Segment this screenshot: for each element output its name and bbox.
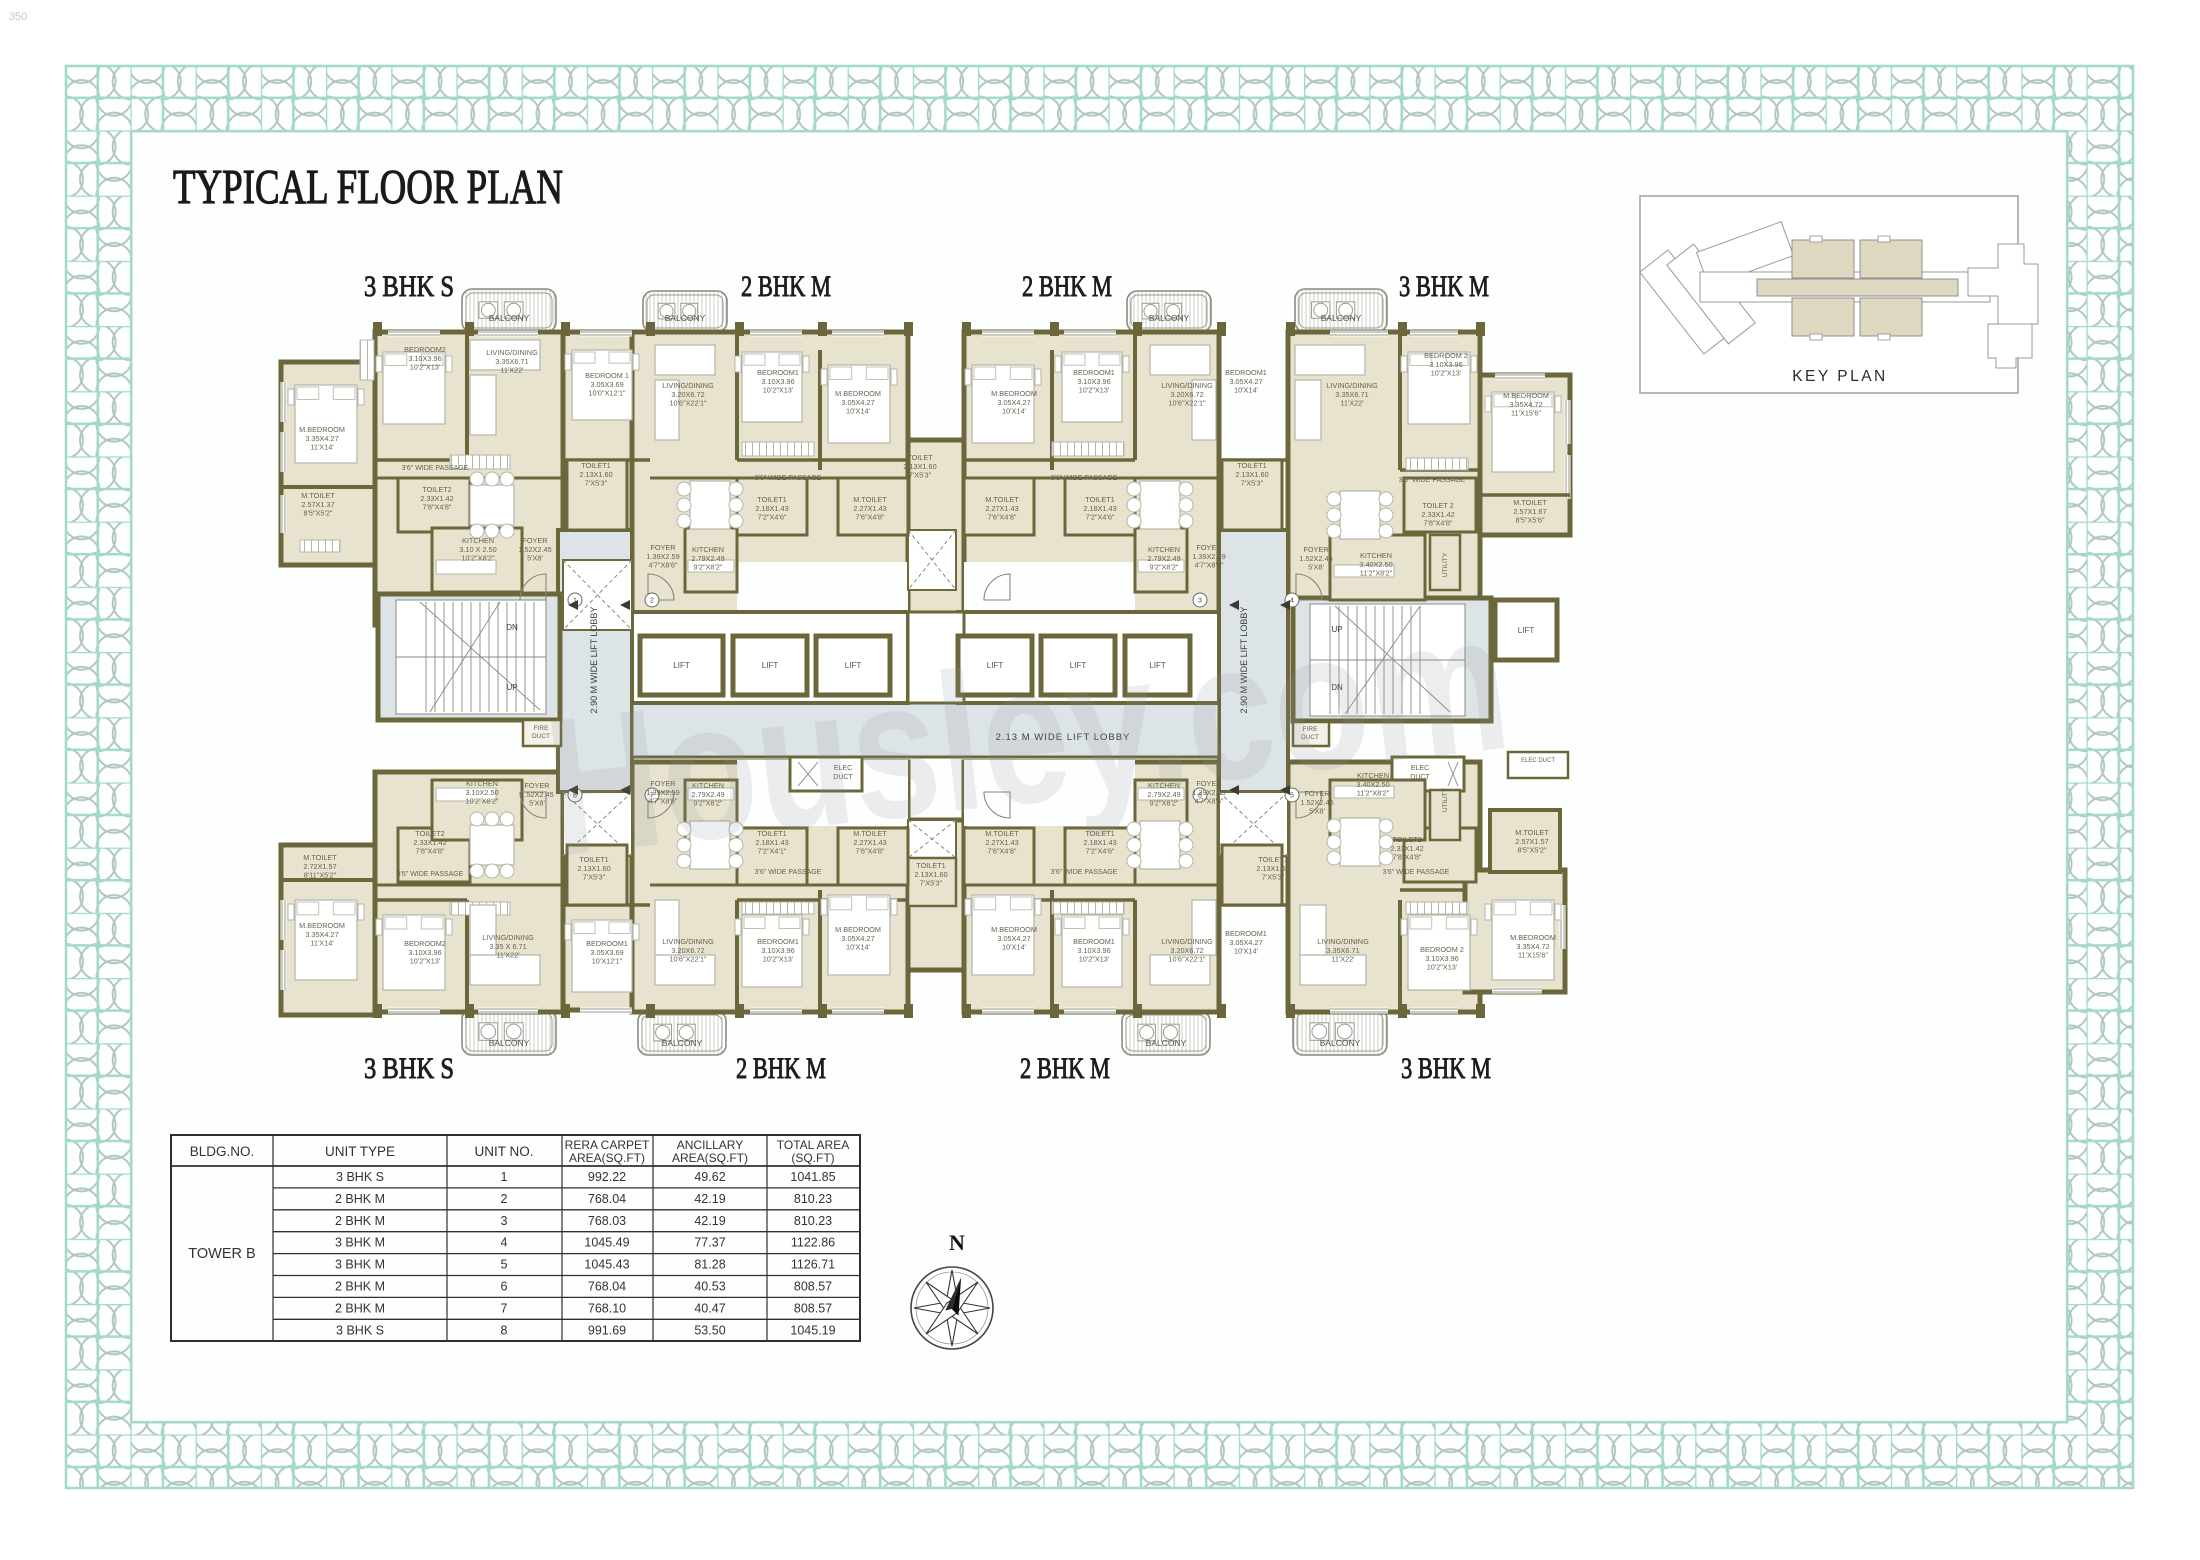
svg-text:KITCHEN: KITCHEN [462,536,494,545]
svg-text:M.BEDROOM: M.BEDROOM [835,389,881,398]
svg-text:3.35X4.72: 3.35X4.72 [1509,400,1542,409]
svg-text:3.35X6.71: 3.35X6.71 [495,357,528,366]
svg-text:BEDROOM1: BEDROOM1 [1225,929,1267,938]
svg-text:10'X14': 10'X14' [1002,407,1026,416]
svg-text:10'2"X13': 10'2"X13' [1427,963,1458,972]
svg-text:1.52X2.45: 1.52X2.45 [518,545,551,554]
svg-text:M.BEDROOM: M.BEDROOM [299,921,345,930]
svg-text:11'X22': 11'X22' [1340,399,1364,408]
svg-text:BALCONY: BALCONY [489,1038,530,1048]
svg-text:BEDROOM 2: BEDROOM 2 [1424,351,1468,360]
svg-text:10'X12'1": 10'X12'1" [592,957,623,966]
svg-text:BEDROOM1: BEDROOM1 [1073,937,1115,946]
svg-text:7'8"X4'8": 7'8"X4'8" [422,503,451,512]
svg-text:10'2"X13': 10'2"X13' [763,955,794,964]
svg-text:11'X14': 11'X14' [310,939,334,948]
svg-text:KITCHEN: KITCHEN [1148,545,1180,554]
svg-text:LIVING/DINING: LIVING/DINING [486,348,538,357]
svg-text:5'X8': 5'X8' [1308,563,1324,572]
svg-text:10'6"X22'1": 10'6"X22'1" [1168,399,1206,408]
svg-text:991.69: 991.69 [588,1323,626,1337]
svg-text:LIVING/DINING: LIVING/DINING [1161,937,1213,946]
svg-text:7'X5'3": 7'X5'3" [1241,479,1264,488]
svg-text:TOWER B: TOWER B [188,1246,255,1262]
svg-text:DN: DN [506,623,518,632]
svg-text:10'0"X12'1": 10'0"X12'1" [588,389,626,398]
svg-text:1045.43: 1045.43 [584,1258,629,1272]
svg-text:BALCONY: BALCONY [489,313,530,323]
svg-text:4: 4 [501,1236,508,1250]
svg-text:2.57X1.57: 2.57X1.57 [1515,837,1548,846]
svg-text:BALCONY: BALCONY [1149,313,1190,323]
svg-text:BEDROOM1: BEDROOM1 [1073,368,1115,377]
svg-text:2: 2 [501,1192,508,1206]
svg-text:UNIT NO.: UNIT NO. [474,1144,533,1159]
svg-text:3.35X6.71: 3.35X6.71 [1326,946,1359,955]
svg-text:BEDROOM 2: BEDROOM 2 [1420,945,1464,954]
svg-text:10'2"X8'2": 10'2"X8'2" [465,797,499,806]
svg-text:3'6" WIDE PASSAGE: 3'6" WIDE PASSAGE [1399,477,1466,484]
svg-text:2 BHK M: 2 BHK M [1022,270,1112,303]
svg-text:BEDROOM1: BEDROOM1 [1225,368,1267,377]
svg-text:FOYER: FOYER [1196,543,1221,552]
svg-text:LIVING/DINING: LIVING/DINING [482,933,534,942]
svg-text:2.33X1.42: 2.33X1.42 [413,838,446,847]
svg-text:3 BHK S: 3 BHK S [364,270,454,303]
svg-text:ELEC DUCT: ELEC DUCT [1521,758,1555,764]
svg-text:4'7"X8'6": 4'7"X8'6" [1194,561,1223,570]
svg-text:10'2"X13': 10'2"X13' [763,386,794,395]
svg-text:11'X15'6": 11'X15'6" [1511,409,1541,418]
svg-text:2.33X1.42: 2.33X1.42 [1421,510,1454,519]
svg-text:2 BHK M: 2 BHK M [335,1192,385,1206]
svg-text:3 BHK S: 3 BHK S [364,1052,454,1085]
svg-text:10'2"X13': 10'2"X13' [1079,955,1110,964]
svg-text:3 BHK M: 3 BHK M [1399,270,1489,303]
svg-text:3.05X4.27: 3.05X4.27 [1229,377,1262,386]
svg-text:8'5"X5'2": 8'5"X5'2" [1517,846,1546,855]
svg-text:3.35X4.27: 3.35X4.27 [305,434,338,443]
svg-text:RERA CARPET: RERA CARPET [565,1138,650,1152]
svg-text:11'X22': 11'X22' [496,951,520,960]
svg-text:11'X15'6": 11'X15'6" [1518,951,1548,960]
svg-text:M.BEDROOM: M.BEDROOM [835,925,881,934]
svg-text:3'6" WIDE PASSAGE: 3'6" WIDE PASSAGE [397,871,464,878]
svg-text:11'X14': 11'X14' [310,443,334,452]
svg-text:42.19: 42.19 [694,1192,725,1206]
svg-text:3.10X2.50: 3.10X2.50 [465,788,498,797]
svg-text:10'X14': 10'X14' [1234,386,1258,395]
svg-text:AREA(SQ.FT): AREA(SQ.FT) [569,1151,645,1165]
svg-text:TOILET 2: TOILET 2 [1422,501,1453,510]
svg-text:7'6"X4'8": 7'6"X4'8" [855,513,884,522]
svg-text:N: N [949,1230,965,1255]
svg-text:2.18X1.43: 2.18X1.43 [1083,838,1116,847]
svg-text:2 BHK M: 2 BHK M [741,270,831,303]
svg-text:7'X5'3": 7'X5'3" [585,479,608,488]
svg-text:BALCONY: BALCONY [665,313,706,323]
svg-text:M.TOILET: M.TOILET [985,495,1019,504]
svg-text:49.62: 49.62 [694,1170,725,1184]
svg-text:2.79X2.49: 2.79X2.49 [691,554,724,563]
svg-text:11'2"X8'2": 11'2"X8'2" [1360,569,1393,578]
svg-text:7: 7 [501,1301,508,1315]
svg-text:2 BHK M: 2 BHK M [736,1052,826,1085]
svg-text:3.35X6.71: 3.35X6.71 [1335,390,1368,399]
svg-text:2.57X1.37: 2.57X1.37 [301,500,334,509]
svg-text:1122.86: 1122.86 [791,1236,835,1250]
svg-text:3.20X6.72: 3.20X6.72 [671,390,704,399]
svg-text:FOYER: FOYER [522,536,547,545]
svg-text:768.04: 768.04 [588,1192,626,1206]
svg-text:3'6" WIDE PASSAGE: 3'6" WIDE PASSAGE [1051,475,1118,482]
svg-text:LIVING/DINING: LIVING/DINING [1326,381,1378,390]
svg-text:992.22: 992.22 [588,1170,626,1184]
svg-text:768.04: 768.04 [588,1280,626,1294]
svg-text:3.10X3.96: 3.10X3.96 [1077,377,1110,386]
svg-text:M.TOILET: M.TOILET [301,491,335,500]
svg-text:KITCHEN: KITCHEN [466,779,498,788]
svg-text:3.05X3.69: 3.05X3.69 [590,948,623,957]
svg-text:3 BHK M: 3 BHK M [335,1236,385,1250]
svg-text:M.TOILET: M.TOILET [1515,828,1549,837]
svg-text:42.19: 42.19 [694,1214,725,1228]
svg-text:8: 8 [501,1323,508,1337]
svg-text:3.05X4.27: 3.05X4.27 [841,934,874,943]
svg-text:FOYER: FOYER [1303,545,1328,554]
svg-text:1045.49: 1045.49 [584,1236,629,1250]
svg-text:5'X8': 5'X8' [527,554,543,563]
svg-text:7'8"X4'8": 7'8"X4'8" [1423,519,1452,528]
svg-text:BALCONY: BALCONY [1320,1038,1361,1048]
svg-text:810.23: 810.23 [794,1214,832,1228]
svg-text:2.13X1.60: 2.13X1.60 [579,470,612,479]
svg-text:FOYER: FOYER [524,781,549,790]
svg-text:40.53: 40.53 [694,1280,725,1294]
svg-text:3 BHK S: 3 BHK S [336,1170,384,1184]
svg-text:TOILET: TOILET [907,453,933,462]
svg-text:10'2"X13': 10'2"X13' [1431,369,1462,378]
svg-text:9'2"X8'2": 9'2"X8'2" [693,563,722,572]
svg-text:BLDG.NO.: BLDG.NO. [190,1144,255,1159]
svg-text:3.10X3.96: 3.10X3.96 [1425,954,1458,963]
svg-text:TOILET1: TOILET1 [581,461,610,470]
svg-text:8'11"X5'2": 8'11"X5'2" [304,871,337,880]
svg-text:1045.19: 1045.19 [790,1323,835,1337]
svg-text:10'2"X8'2": 10'2"X8'2" [461,554,495,563]
svg-text:3.05X4.27: 3.05X4.27 [997,398,1030,407]
svg-text:3.05X4.27: 3.05X4.27 [841,398,874,407]
svg-text:3.05X3.69: 3.05X3.69 [590,380,623,389]
svg-text:10'2"X13': 10'2"X13' [410,363,441,372]
svg-text:10'2"X13': 10'2"X13' [410,957,441,966]
svg-text:7'2"X4'6": 7'2"X4'6" [1085,847,1114,856]
svg-text:2 BHK M: 2 BHK M [1020,1052,1110,1085]
svg-text:TYPICAL FLOOR PLAN: TYPICAL FLOOR PLAN [173,159,563,214]
svg-text:7'2"X4'6": 7'2"X4'6" [1085,513,1114,522]
svg-text:BEDROOM 1: BEDROOM 1 [585,371,629,380]
svg-text:M.TOILET: M.TOILET [303,853,337,862]
svg-text:2 BHK M: 2 BHK M [335,1280,385,1294]
svg-text:BEDROOM1: BEDROOM1 [757,937,799,946]
svg-text:M.BEDROOM: M.BEDROOM [991,389,1037,398]
svg-text:2 BHK M: 2 BHK M [335,1214,385,1228]
svg-text:LIVING/DINING: LIVING/DINING [1161,381,1213,390]
svg-text:2.18X1.43: 2.18X1.43 [1083,504,1116,513]
svg-text:TOTAL AREA: TOTAL AREA [777,1138,849,1152]
svg-text:1.39X2.59: 1.39X2.59 [646,552,679,561]
svg-text:3.10X3.96: 3.10X3.96 [408,354,441,363]
svg-text:10'X14': 10'X14' [1234,947,1258,956]
svg-text:11'X22': 11'X22' [500,366,524,375]
svg-text:808.57: 808.57 [794,1301,832,1315]
svg-text:UNIT TYPE: UNIT TYPE [325,1144,395,1159]
svg-text:KITCHEN: KITCHEN [692,545,724,554]
svg-text:3.20X6.72: 3.20X6.72 [1170,390,1203,399]
svg-text:3.20X6.72: 3.20X6.72 [1170,946,1203,955]
svg-text:3.10 X 2.50: 3.10 X 2.50 [459,545,496,554]
svg-text:2.18X1.43: 2.18X1.43 [755,504,788,513]
svg-text:TOILET1: TOILET1 [1258,855,1287,864]
svg-text:2.27X1.43: 2.27X1.43 [985,504,1018,513]
svg-text:7'8"X4'8": 7'8"X4'8" [1392,853,1421,862]
svg-text:1041.85: 1041.85 [790,1170,835,1184]
svg-text:1.52X2.45: 1.52X2.45 [1299,554,1332,563]
svg-text:KITCHEN: KITCHEN [1360,551,1392,560]
svg-text:TOILET2: TOILET2 [1392,835,1421,844]
svg-text:40.47: 40.47 [694,1301,725,1315]
svg-text:2.72X1.57: 2.72X1.57 [303,862,336,871]
svg-text:UP: UP [506,683,517,692]
svg-text:BEDROOM2: BEDROOM2 [404,345,446,354]
svg-text:3.35X4.72: 3.35X4.72 [1516,942,1549,951]
svg-text:2.13X1.60: 2.13X1.60 [903,462,936,471]
svg-text:3'6" WIDE PASSAGE: 3'6" WIDE PASSAGE [755,475,822,482]
svg-text:UTILITY: UTILITY [1442,552,1449,577]
svg-text:2.57X1.67: 2.57X1.67 [1513,507,1546,516]
svg-text:10'X14': 10'X14' [1002,943,1026,952]
svg-text:3 BHK S: 3 BHK S [336,1323,384,1337]
svg-text:3 BHK M: 3 BHK M [1401,1052,1491,1085]
svg-text:M.BEDROOM: M.BEDROOM [1510,933,1556,942]
svg-text:3.10X3.96: 3.10X3.96 [408,948,441,957]
svg-text:2.13X1.60: 2.13X1.60 [1235,470,1268,479]
svg-text:2.27X1.43: 2.27X1.43 [853,504,886,513]
svg-text:M.BEDROOM: M.BEDROOM [299,425,345,434]
svg-text:BEDROOM1: BEDROOM1 [757,368,799,377]
svg-text:53.50: 53.50 [694,1323,725,1337]
svg-text:TOILET1: TOILET1 [757,495,786,504]
svg-text:KEY PLAN: KEY PLAN [1792,368,1888,385]
svg-text:3.40X2.50: 3.40X2.50 [1359,560,1392,569]
svg-text:BALCONY: BALCONY [1146,1038,1187,1048]
svg-text:6: 6 [501,1280,508,1294]
svg-text:BALCONY: BALCONY [662,1038,703,1048]
svg-text:7'8"X4'8": 7'8"X4'8" [415,847,444,856]
svg-text:2.13X1.60: 2.13X1.60 [1256,864,1289,873]
svg-text:2.33X1.42: 2.33X1.42 [1390,844,1423,853]
svg-text:2: 2 [650,598,654,605]
svg-text:3.35X4.27: 3.35X4.27 [305,930,338,939]
svg-text:3.20X6.72: 3.20X6.72 [671,946,704,955]
svg-text:7'2"X4'6": 7'2"X4'6" [757,513,786,522]
svg-text:M.TOILET: M.TOILET [1513,498,1547,507]
svg-text:10'6"X22'1": 10'6"X22'1" [669,955,707,964]
svg-text:810.23: 810.23 [794,1192,832,1206]
svg-text:2.33X1.42: 2.33X1.42 [420,494,453,503]
svg-text:LIVING/DINING: LIVING/DINING [1317,937,1369,946]
svg-text:BEDROOM1: BEDROOM1 [586,939,628,948]
svg-text:8'5"X5'6": 8'5"X5'6" [1515,516,1544,525]
svg-text:LIVING/DINING: LIVING/DINING [662,381,714,390]
svg-text:LIFT: LIFT [1518,626,1535,635]
svg-text:768.03: 768.03 [588,1214,626,1228]
svg-text:BALCONY: BALCONY [1321,313,1362,323]
svg-text:10'X14': 10'X14' [846,943,870,952]
svg-text:2.13X1.60: 2.13X1.60 [914,870,947,879]
svg-text:3.05X4.27: 3.05X4.27 [997,934,1030,943]
svg-text:3.10X3.96: 3.10X3.96 [761,377,794,386]
svg-text:M.BEDROOM: M.BEDROOM [1503,391,1549,400]
svg-text:TOILET1: TOILET1 [1085,495,1114,504]
svg-text:(SQ.FT): (SQ.FT) [791,1151,834,1165]
svg-text:77.37: 77.37 [694,1236,725,1250]
svg-text:3: 3 [501,1214,508,1228]
svg-text:3.05X4.27: 3.05X4.27 [1229,938,1262,947]
svg-text:9'2"X8'2": 9'2"X8'2" [1149,563,1178,572]
svg-text:TOILET2: TOILET2 [415,829,444,838]
svg-text:7'X5'3": 7'X5'3" [920,879,943,888]
svg-text:3'6" WIDE PASSAGE: 3'6" WIDE PASSAGE [1383,869,1450,876]
svg-text:BEDROOM2: BEDROOM2 [404,939,446,948]
svg-text:5: 5 [501,1258,508,1272]
svg-text:TOILET1: TOILET1 [916,861,945,870]
svg-text:TOILET2: TOILET2 [422,485,451,494]
svg-text:LIVING/DINING: LIVING/DINING [662,937,714,946]
svg-text:350: 350 [9,11,27,23]
svg-text:7'X5'3": 7'X5'3" [1262,873,1285,882]
svg-text:5'X8': 5'X8' [529,799,545,808]
svg-text:M.BEDROOM: M.BEDROOM [991,925,1037,934]
svg-text:7'6"X4'8": 7'6"X4'8" [987,513,1016,522]
svg-text:FOYER: FOYER [650,543,675,552]
svg-text:2 BHK M: 2 BHK M [335,1301,385,1315]
svg-text:4'7"X8'6": 4'7"X8'6" [648,561,677,570]
svg-text:3.10X3.96: 3.10X3.96 [1429,360,1462,369]
svg-text:10'2"X13': 10'2"X13' [1079,386,1110,395]
svg-text:8'5"X5'2": 8'5"X5'2" [303,509,332,518]
svg-text:7'X5'3": 7'X5'3" [909,471,932,480]
svg-text:3.10X3.96: 3.10X3.96 [761,946,794,955]
svg-text:2.79X2.49: 2.79X2.49 [1147,554,1180,563]
svg-text:TOILET1: TOILET1 [1237,461,1266,470]
svg-text:1126.71: 1126.71 [791,1258,835,1272]
svg-text:3.10X3.96: 3.10X3.96 [1077,946,1110,955]
svg-text:1.39X2.59: 1.39X2.59 [1192,552,1225,561]
svg-text:81.28: 81.28 [694,1258,725,1272]
svg-text:10'6"X22'1": 10'6"X22'1" [1168,955,1206,964]
svg-text:ANCILLARY: ANCILLARY [677,1138,743,1152]
svg-text:M.TOILET: M.TOILET [853,495,887,504]
svg-text:11'X22': 11'X22' [1331,955,1355,964]
svg-text:3.35 X 6.71: 3.35 X 6.71 [489,942,526,951]
svg-text:1: 1 [501,1170,508,1184]
svg-text:3 BHK M: 3 BHK M [335,1258,385,1272]
svg-text:10'6"X22'1": 10'6"X22'1" [669,399,707,408]
svg-text:AREA(SQ.FT): AREA(SQ.FT) [672,1151,748,1165]
svg-text:3'6" WIDE PASSAGE: 3'6" WIDE PASSAGE [402,465,469,472]
svg-text:808.57: 808.57 [794,1280,832,1294]
svg-text:3'6" WIDE PASSAGE: 3'6" WIDE PASSAGE [1051,869,1118,876]
svg-text:768.10: 768.10 [588,1301,626,1315]
svg-text:10'X14': 10'X14' [846,407,870,416]
